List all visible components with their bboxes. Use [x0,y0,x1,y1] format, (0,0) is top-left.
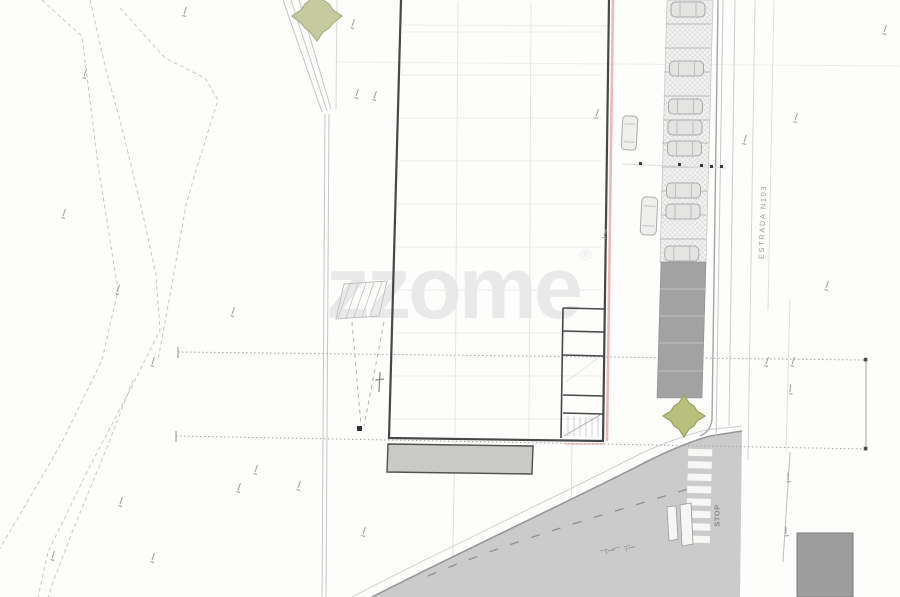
site-boundary-lines [283,0,337,597]
level-mark [376,372,385,392]
contour-lines [0,0,218,597]
driveway-car-2 [640,197,658,236]
stop-marking-label: STOP [713,501,722,531]
loading-apron [387,444,533,474]
survey-marks [51,7,887,563]
faint-grid-lines [335,25,900,66]
site-plan-page: zzome® [0,0,900,597]
parking-dark-block [657,262,706,398]
neighbor-structure [797,533,853,597]
tree-icon [663,395,705,437]
driveway-car-1 [621,116,638,151]
ramp-hatch [336,281,387,319]
parking-strip [657,0,713,398]
site-plan-drawing [0,0,900,597]
stair-hatch [564,358,600,437]
slope-arrows [352,322,384,426]
slope-apex-mark [357,426,362,431]
tree-icon [292,0,342,41]
building-interior-grid [392,2,602,438]
building [336,0,613,444]
